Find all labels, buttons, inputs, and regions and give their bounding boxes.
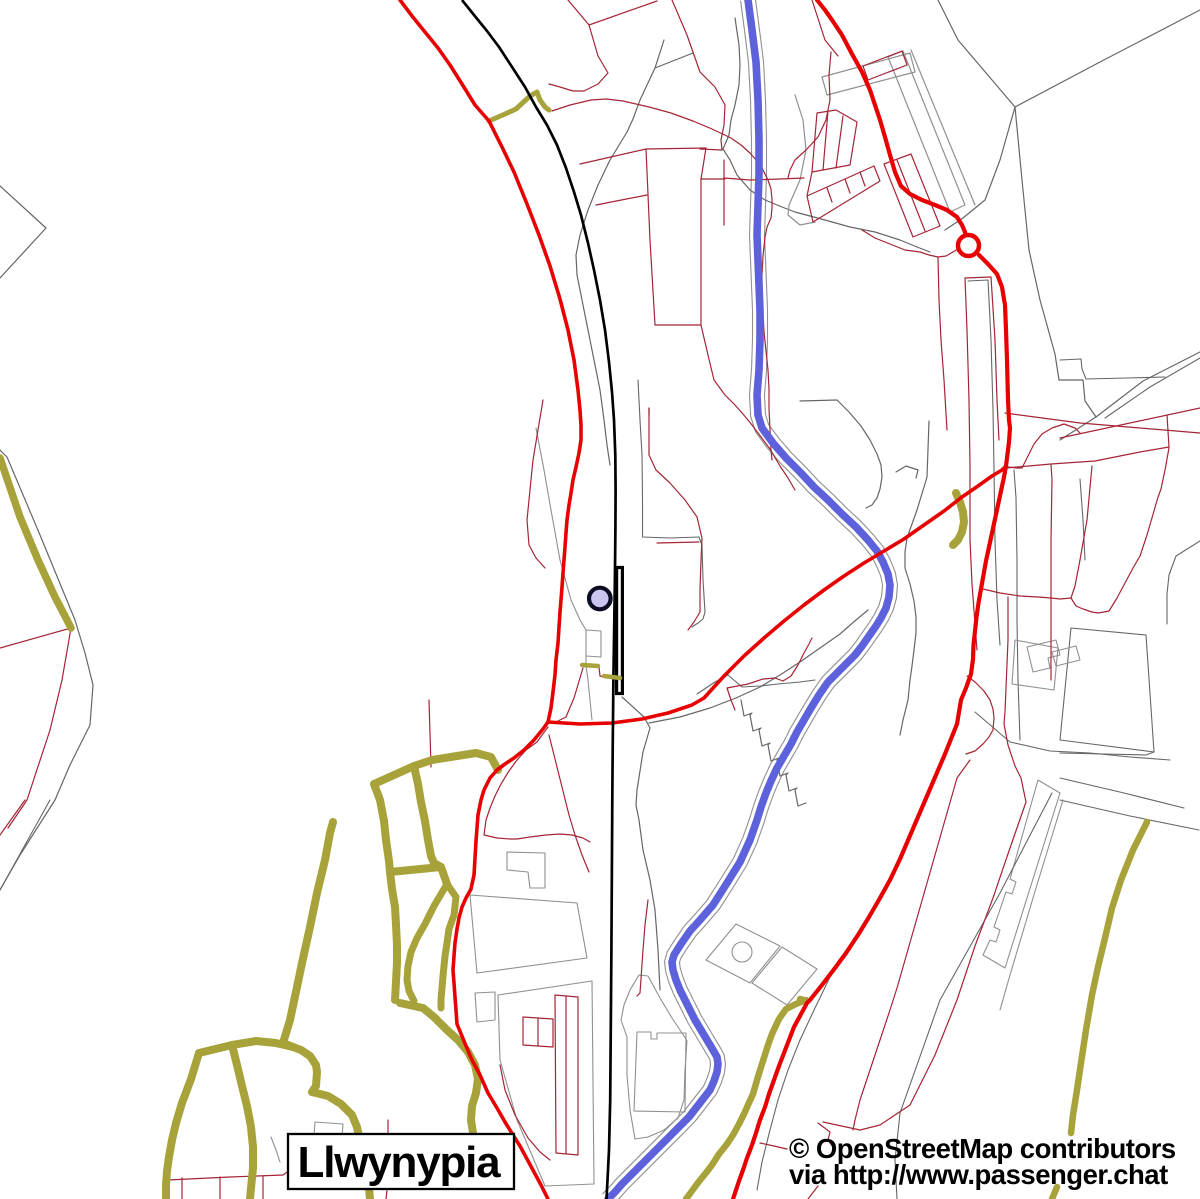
svg-text:Llwynypia: Llwynypia [298, 1138, 502, 1187]
svg-text:via http://www.passenger.chat: via http://www.passenger.chat [789, 1159, 1168, 1190]
